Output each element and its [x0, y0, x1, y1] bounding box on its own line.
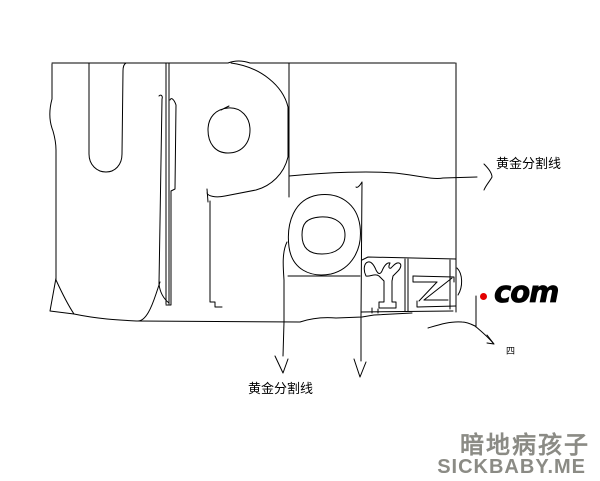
golden-line-horizontal-arrow [289, 164, 492, 190]
com-text: com [494, 275, 558, 309]
freehand-sketch-canvas [0, 0, 600, 481]
letter-p-sketch [166, 63, 288, 307]
yz-box-lines [361, 257, 462, 312]
frame-lines [50, 61, 456, 322]
letter-o-sketch [288, 195, 360, 276]
sketch-page: 黄金分割线 黄金分割线 com 四 暗地病孩子 SICKBABY.ME [0, 0, 600, 481]
tiny-annotation-text: 四 [506, 344, 515, 357]
watermark-cn: 暗地病孩子 [460, 433, 590, 457]
letter-u-sketch [74, 63, 169, 321]
red-dot [480, 293, 487, 300]
golden-line-label-bottom: 黄金分割线 [248, 383, 313, 396]
golden-line-vertical-left-arrow [275, 242, 288, 373]
letter-y-sketch [364, 262, 401, 313]
golden-line-label-right: 黄金分割线 [496, 158, 561, 171]
com-annotation-lines [428, 296, 494, 344]
watermark-site: SICKBABY.ME [437, 457, 586, 477]
